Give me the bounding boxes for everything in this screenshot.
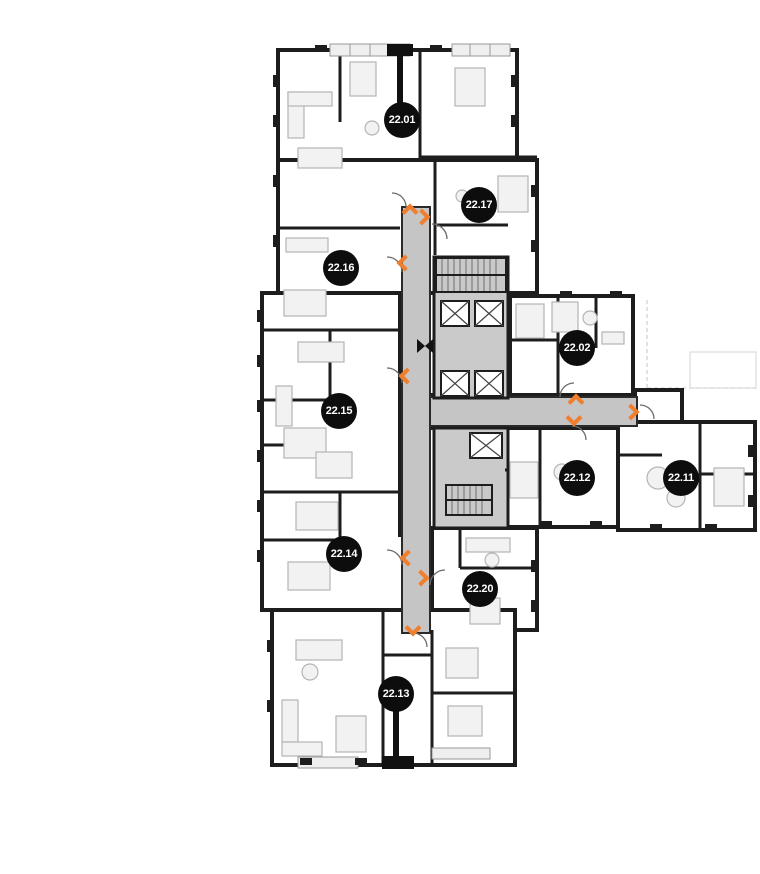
corridor-arrow-left-icon [399,368,416,385]
unit-badge-22.20[interactable]: 22.20 [462,571,498,607]
corridor-arrow-up-icon [568,394,585,411]
unit-badge-22.16[interactable]: 22.16 [323,250,359,286]
corridor-arrow-right-icon [623,404,640,421]
corridor-arrow-right-icon [413,570,430,587]
corridor-arrow-down-icon [566,410,583,427]
overlay-layer: 22.0122.1722.1622.0222.1522.1222.1122.14… [0,0,760,874]
unit-badge-22.14[interactable]: 22.14 [326,536,362,572]
unit-badge-22.15[interactable]: 22.15 [321,393,357,429]
unit-badge-22.01[interactable]: 22.01 [384,102,420,138]
corridor-arrow-down-icon [405,620,422,637]
floorplan-stage: 22.0122.1722.1622.0222.1522.1222.1122.14… [0,0,760,874]
unit-badge-22.12[interactable]: 22.12 [559,460,595,496]
corridor-arrow-left-icon [400,550,417,567]
unit-badge-22.17[interactable]: 22.17 [461,187,497,223]
corridor-arrow-left-icon [397,255,414,272]
unit-badge-22.02[interactable]: 22.02 [559,330,595,366]
unit-badge-22.13[interactable]: 22.13 [378,676,414,712]
unit-badge-22.11[interactable]: 22.11 [663,460,699,496]
